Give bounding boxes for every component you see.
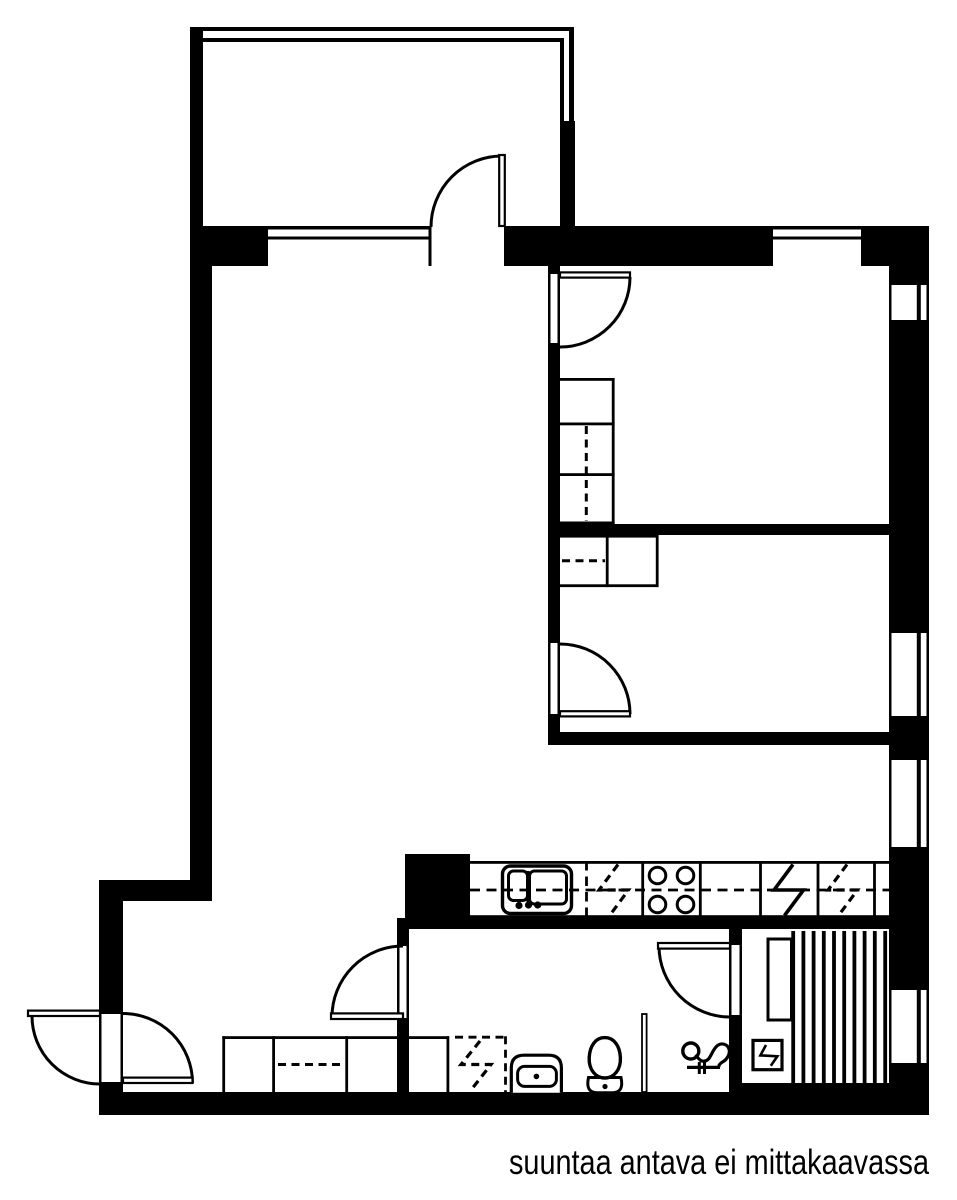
svg-text:suuntaa antava ei mittakaavass: suuntaa antava ei mittakaavassa	[509, 1142, 929, 1182]
